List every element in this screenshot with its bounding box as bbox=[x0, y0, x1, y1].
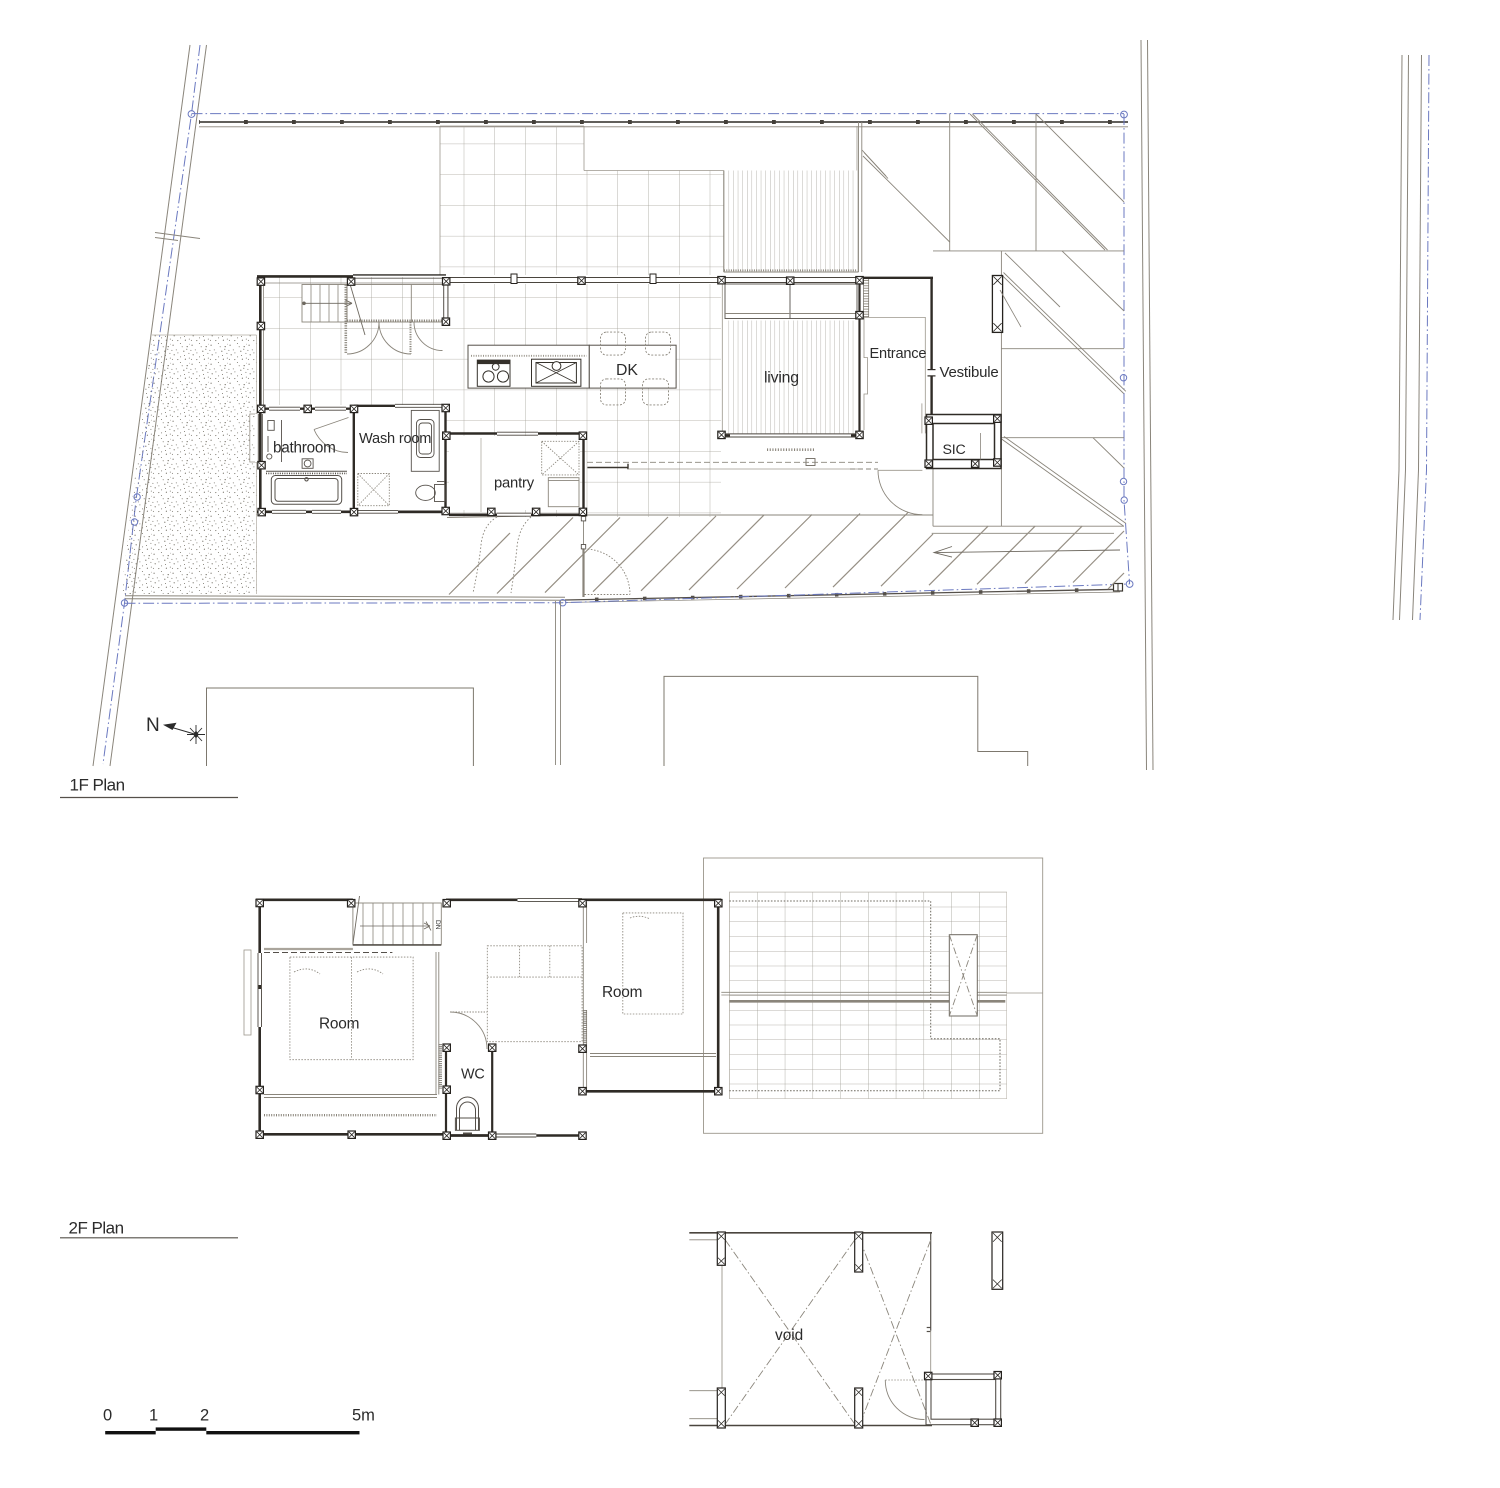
svg-text:1F Plan: 1F Plan bbox=[70, 776, 125, 795]
svg-text:pantry: pantry bbox=[494, 475, 535, 491]
svg-text:Entrance: Entrance bbox=[870, 346, 927, 362]
svg-text:SIC: SIC bbox=[943, 442, 966, 458]
svg-text:2F Plan: 2F Plan bbox=[69, 1219, 124, 1238]
svg-text:2: 2 bbox=[200, 1407, 209, 1425]
svg-text:DN: DN bbox=[434, 920, 441, 930]
svg-text:DK: DK bbox=[616, 362, 638, 379]
svg-text:0: 0 bbox=[103, 1407, 112, 1425]
svg-text:5m: 5m bbox=[352, 1407, 375, 1425]
svg-text:void: void bbox=[775, 1327, 803, 1344]
svg-text:Wash room: Wash room bbox=[359, 431, 431, 447]
svg-text:1: 1 bbox=[149, 1407, 158, 1425]
svg-text:WC: WC bbox=[461, 1066, 485, 1082]
svg-text:Room: Room bbox=[319, 1016, 359, 1033]
svg-text:Room: Room bbox=[602, 984, 642, 1001]
svg-text:Vestibule: Vestibule bbox=[940, 364, 999, 381]
svg-text:N: N bbox=[146, 715, 160, 736]
svg-text:living: living bbox=[764, 370, 799, 387]
svg-text:bathroom: bathroom bbox=[273, 439, 336, 456]
